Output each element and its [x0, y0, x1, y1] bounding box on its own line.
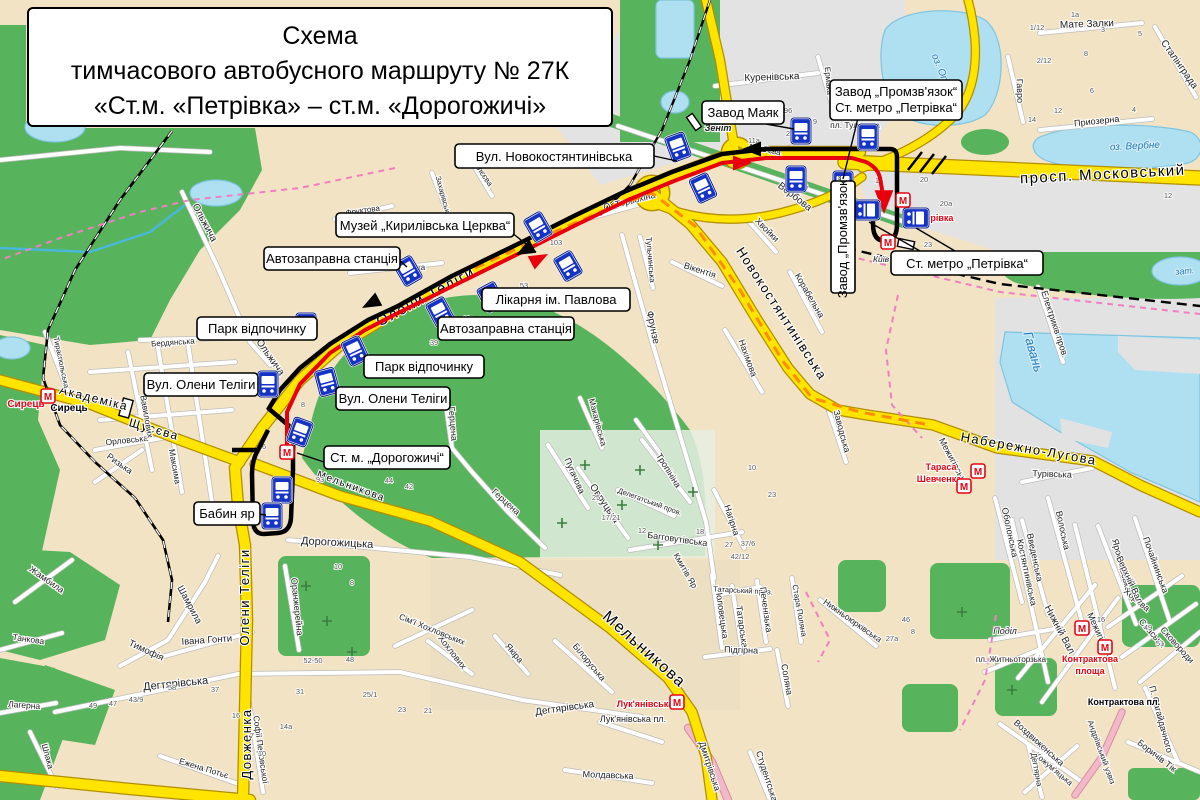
- house-number: 8: [350, 578, 354, 587]
- house-number: 37: [211, 685, 219, 694]
- street-label: Куренівська: [744, 71, 800, 84]
- house-number: 16: [232, 711, 240, 720]
- callout-label-line2: Ст. метро „Петрівка“: [835, 100, 957, 115]
- house-number: 12: [638, 526, 646, 535]
- bus-stop-icon: [903, 208, 929, 228]
- street-label: Сирець: [7, 399, 44, 410]
- house-number: 93: [316, 475, 324, 484]
- street-label: Лук'янівська пл.: [600, 714, 666, 724]
- house-number: 10: [748, 463, 756, 472]
- street-label: Тараса: [926, 462, 958, 472]
- house-number: 20а: [940, 199, 953, 208]
- street-label: пл. Житньоторзька: [976, 655, 1047, 664]
- house-number: 10: [258, 749, 266, 758]
- street-label: Мате Залки: [1060, 18, 1114, 31]
- house-number: 27: [725, 540, 733, 549]
- house-number: 49: [89, 701, 97, 710]
- house-number: 8: [911, 627, 915, 636]
- title-line2: тимчасового автобусного маршруту № 27К: [71, 57, 570, 85]
- street-label: площа: [1075, 666, 1105, 676]
- house-number: 23: [398, 705, 406, 714]
- house-number: 39: [430, 338, 438, 347]
- house-number: 46: [902, 615, 910, 624]
- callout-azs-2: Автозаправна станція: [438, 317, 574, 340]
- callout-label: Автозаправна станція: [266, 251, 398, 266]
- bus-route-map: М: [0, 0, 1200, 800]
- callout-zavod-maiak: Завод Маяк: [702, 101, 784, 124]
- bus-stop-icon: [791, 118, 811, 144]
- bus-stop-icon: [786, 166, 806, 192]
- callout-park-1: Парк відпочинку: [197, 317, 317, 340]
- callout-dorohozhychi: Ст. м. „Дорогожичі“: [324, 446, 450, 469]
- street-label: Київ: [873, 254, 890, 264]
- bus-stop-icon: [272, 477, 292, 503]
- street-label: Поділ: [993, 626, 1017, 636]
- house-number: 51: [1156, 639, 1164, 648]
- bus-stop-icon: [258, 371, 278, 397]
- callout-promzviazok-vertical: Завод „Промзв'язок“: [831, 176, 855, 298]
- callout-st-metro-petrivka: Ст. метро „Петрівка“: [891, 251, 1043, 275]
- metro-icon: [896, 193, 910, 207]
- callout-label: Лікарня ім. Павлова: [496, 292, 618, 307]
- callout-label: Завод „Промзв'язок“: [835, 176, 850, 298]
- callout-azs-1: Автозаправна станція: [264, 247, 400, 270]
- house-number: 8: [301, 400, 305, 409]
- house-number: 14а: [280, 722, 293, 731]
- house-number: 8: [1084, 49, 1088, 58]
- house-number: 1а: [1071, 10, 1080, 19]
- house-number: 14: [1028, 115, 1036, 124]
- street-label: Сирець: [50, 403, 87, 414]
- callout-label: Ст. метро „Петрівка“: [906, 256, 1028, 271]
- street-label: Гавро: [1015, 79, 1026, 104]
- house-number: 25/1: [363, 690, 378, 699]
- metro-icon: [280, 445, 294, 459]
- callout-label: Парк відпочинку: [208, 321, 307, 336]
- house-number: 9: [813, 117, 817, 126]
- house-number: 25: [592, 493, 600, 502]
- callout-promzviazok-petrivka: Завод „Промзв'язок“ Ст. метро „Петрівка“: [830, 80, 962, 120]
- title-line3: «Ст.м. «Петрівка» – ст.м. «Дорогожичі»: [94, 92, 546, 120]
- callout-label: Автозаправна станція: [440, 321, 572, 336]
- metro-icon: [670, 695, 684, 709]
- callout-likarnia-pavlova: Лікарня ім. Павлова: [482, 288, 630, 311]
- bus-stop-icon: [858, 124, 878, 150]
- house-number: 21: [424, 706, 432, 715]
- callout-label: Ст. м. „Дорогожичі“: [330, 450, 444, 465]
- street-label: Контрактова: [1062, 654, 1119, 664]
- bus-stop-icon: [262, 503, 282, 529]
- callout-label: Парк відпочинку: [375, 359, 474, 374]
- house-number: 12: [1164, 191, 1172, 200]
- metro-icon: [957, 479, 971, 493]
- house-number: 48: [346, 655, 354, 664]
- callout-babyn-yar: Бабин яр: [194, 502, 260, 525]
- metro-icon: [971, 464, 985, 478]
- callout-muzei-kyrylivska: Музей „Кирилівська Церква“: [336, 213, 514, 237]
- callout-telihy-1: Вул. Олени Теліги: [144, 373, 258, 396]
- house-number: 7: [250, 731, 254, 740]
- house-number: 42: [405, 482, 413, 491]
- house-number: 52-50: [303, 656, 322, 665]
- house-number: 44: [385, 476, 393, 485]
- street-label: зат.: [1174, 265, 1195, 277]
- street-label: Молдавська: [582, 769, 633, 781]
- callout-label: Завод Маяк: [708, 105, 779, 120]
- house-number: 20: [920, 175, 928, 184]
- bus-stop-icon: [854, 200, 880, 220]
- callout-label: Музей „Кирилівська Церква“: [340, 218, 510, 233]
- house-number: 4: [1132, 105, 1136, 114]
- house-number: 23: [768, 490, 776, 499]
- street-label: Контрактова пл.: [1088, 697, 1160, 707]
- house-number: 47: [109, 699, 117, 708]
- house-number: 5: [1138, 29, 1142, 38]
- street-label: Турівська: [1032, 468, 1072, 479]
- callout-telihy-2: Вул. Олени Теліги: [336, 387, 450, 410]
- house-number: 10: [334, 562, 342, 571]
- house-number: 3: [1101, 25, 1105, 34]
- title-box: Схема тимчасового автобусного маршруту №…: [28, 8, 612, 126]
- house-number: 42/12: [731, 552, 750, 561]
- house-number: 43/9: [129, 695, 144, 704]
- metro-icon: [881, 235, 895, 249]
- callout-label-line1: Завод „Промзв'язок“: [835, 84, 957, 99]
- house-number: 16: [1097, 615, 1105, 624]
- metro-icon: [41, 389, 55, 403]
- callout-label: Вул. Олени Теліги: [339, 391, 448, 406]
- house-number: 31: [296, 687, 304, 696]
- street-label: Підгірна: [724, 644, 758, 655]
- street-label: Олени Теліги: [237, 548, 252, 645]
- metro-icon: [1075, 621, 1089, 635]
- house-number: 17/21: [602, 513, 621, 522]
- metro-icon: [1098, 640, 1112, 654]
- street-label: Лук'янівська: [617, 699, 675, 709]
- house-number: 2/12: [1037, 56, 1052, 65]
- house-number: 18: [696, 527, 704, 536]
- house-number: 12: [1054, 106, 1062, 115]
- house-number: 27а: [886, 634, 899, 643]
- callout-park-2: Парк відпочинку: [364, 355, 484, 378]
- house-number: 23: [924, 240, 932, 249]
- callout-label: Бабин яр: [199, 506, 255, 521]
- house-number: 1/12: [1030, 23, 1045, 32]
- callout-label: Вул. Новокостянтинівська: [476, 149, 633, 164]
- house-number: 37/6: [741, 539, 756, 548]
- callout-novokostiantynivska: Вул. Новокостянтинівська: [455, 144, 654, 168]
- title-line1: Схема: [282, 22, 357, 50]
- callout-label: Вул. Олени Теліги: [147, 377, 256, 392]
- house-number: 58: [168, 683, 176, 692]
- map-canvas: М: [0, 0, 1200, 800]
- house-number: 49: [1144, 623, 1152, 632]
- house-number: 6: [1090, 86, 1094, 95]
- street-label: Шевченка: [917, 474, 962, 484]
